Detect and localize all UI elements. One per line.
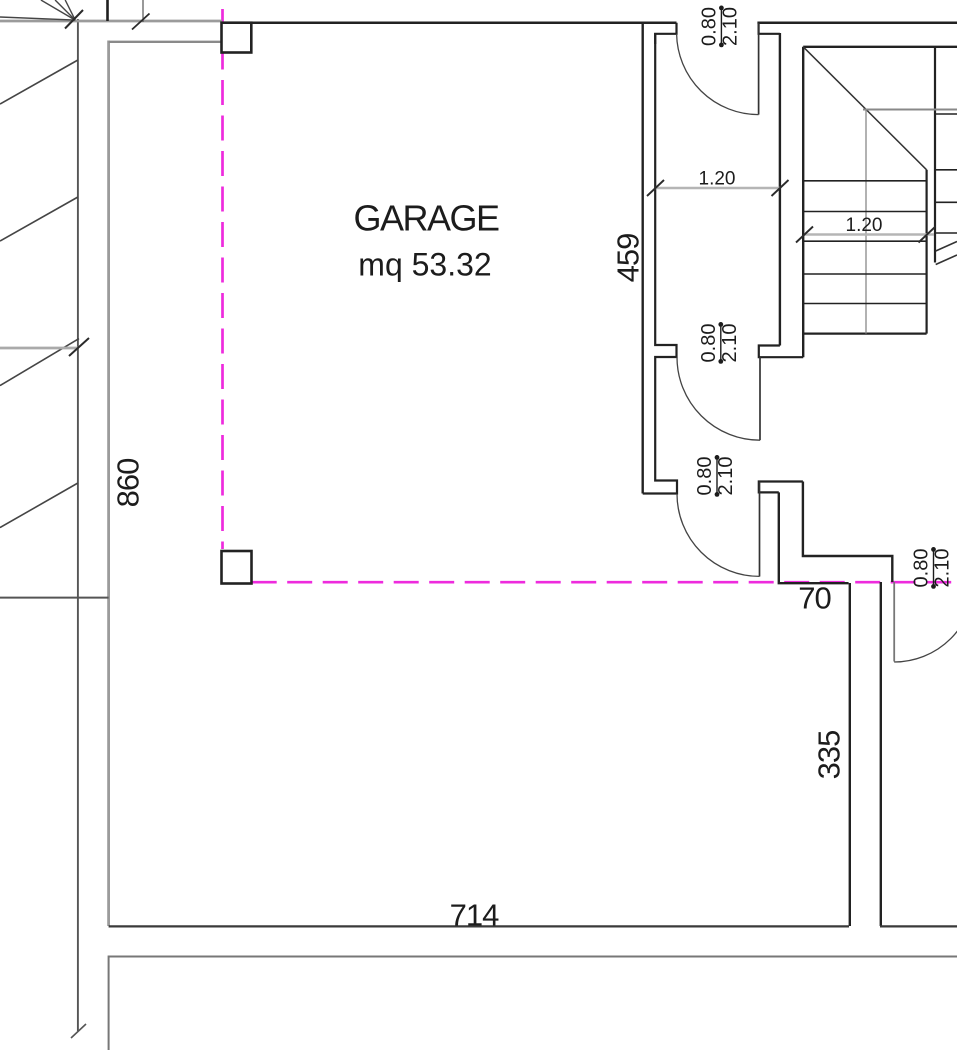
svg-text:70: 70 <box>798 581 831 616</box>
svg-text:2.10: 2.10 <box>719 324 741 363</box>
svg-text:2.10: 2.10 <box>932 549 954 588</box>
svg-text:2.10: 2.10 <box>715 457 737 496</box>
svg-text:mq 53.32: mq 53.32 <box>358 247 491 283</box>
svg-text:1.20: 1.20 <box>699 169 736 190</box>
svg-text:0.80: 0.80 <box>911 549 933 588</box>
svg-text:0.80: 0.80 <box>694 457 716 496</box>
svg-text:0.80: 0.80 <box>698 7 720 46</box>
svg-text:2.10: 2.10 <box>719 7 741 46</box>
svg-text:714: 714 <box>450 898 499 933</box>
svg-text:GARAGE: GARAGE <box>353 198 499 239</box>
svg-text:0.80: 0.80 <box>698 324 720 363</box>
svg-text:1.20: 1.20 <box>846 215 883 236</box>
svg-text:335: 335 <box>812 731 847 780</box>
svg-text:459: 459 <box>611 234 646 283</box>
svg-text:860: 860 <box>111 458 146 507</box>
